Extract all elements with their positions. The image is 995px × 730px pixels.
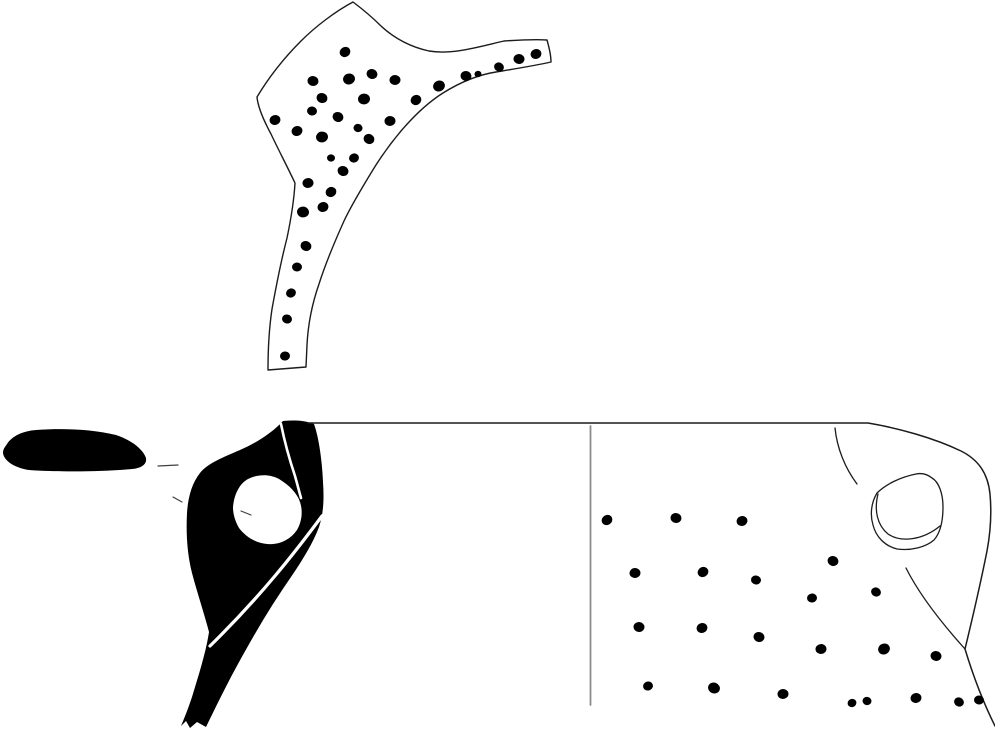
stipple-dot (696, 565, 710, 579)
rim-top-section (3, 429, 146, 471)
stipple-dot (876, 641, 892, 656)
stipple-dot (642, 680, 654, 691)
tick-rim-left (158, 465, 178, 466)
stipple-dot (815, 644, 827, 655)
stipple-dot (629, 568, 640, 578)
illustration-canvas (0, 0, 995, 730)
stipple-dot (777, 689, 788, 699)
shoulder-break-curve (906, 568, 965, 649)
stipple-dot (846, 697, 858, 708)
stipple-dot (633, 622, 645, 632)
stipple-dot (910, 692, 923, 704)
stipple-dot (735, 515, 748, 528)
stipple-dot (953, 696, 966, 709)
stipple-dot (806, 593, 818, 604)
stipple-dot (670, 512, 682, 523)
stipple-dot (930, 650, 942, 661)
stipple-dot (862, 696, 873, 706)
stipple-dot (600, 513, 614, 527)
stipple-dot (974, 695, 985, 705)
vessel-rim-and-right-outline (308, 423, 995, 726)
tick-below-rim (173, 497, 182, 502)
profile-section (181, 420, 324, 728)
stipple-dot (752, 631, 765, 644)
lug-hole-outer (871, 474, 943, 550)
stipple-dot (750, 575, 762, 586)
stipple-dot (870, 586, 883, 598)
handle-sherd-outline (257, 2, 551, 370)
neck-handle-curve (835, 428, 857, 484)
lug-hole-inner (876, 494, 940, 539)
stipple-dot (292, 263, 302, 272)
stipple-dot (695, 621, 709, 634)
pottery-drawing-svg (0, 0, 995, 730)
body-exterior-stipple (600, 512, 985, 708)
stipple-dot (826, 554, 840, 567)
stipple-dot (706, 681, 721, 696)
